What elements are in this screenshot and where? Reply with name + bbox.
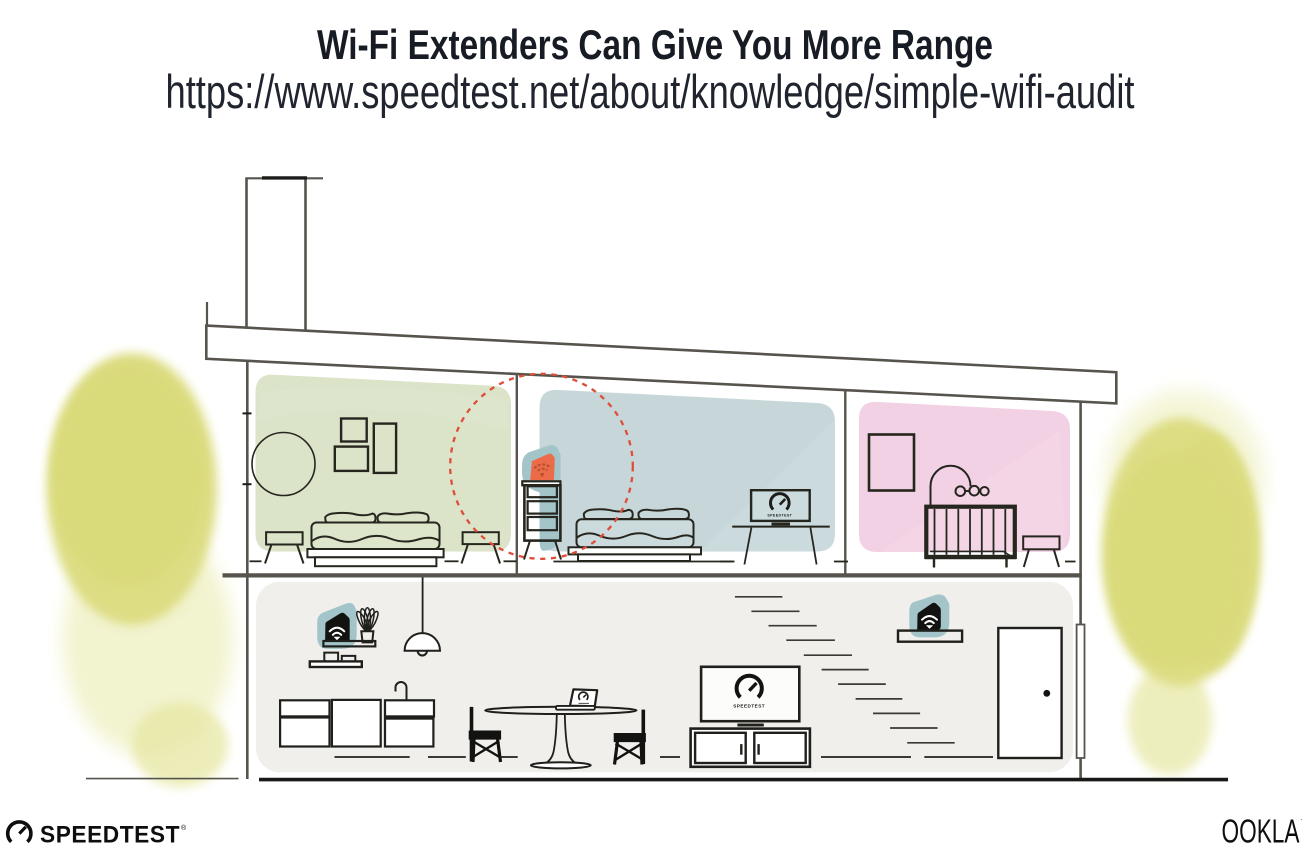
svg-text:SPEEDTEST: SPEEDTEST <box>40 822 180 849</box>
svg-text:SPEEDTEST: SPEEDTEST <box>767 514 792 518</box>
svg-text:Wi-Fi Extenders Can Give You M: Wi-Fi Extenders Can Give You More Range <box>317 21 993 68</box>
svg-text:®: ® <box>181 824 187 832</box>
svg-text:OOKLA: OOKLA <box>1222 813 1300 850</box>
svg-text:´: ´ <box>1301 820 1303 826</box>
svg-text:https://www.speedtest.net/abou: https://www.speedtest.net/about/knowledg… <box>166 65 1135 118</box>
svg-text:SPEEDTEST: SPEEDTEST <box>733 704 765 709</box>
